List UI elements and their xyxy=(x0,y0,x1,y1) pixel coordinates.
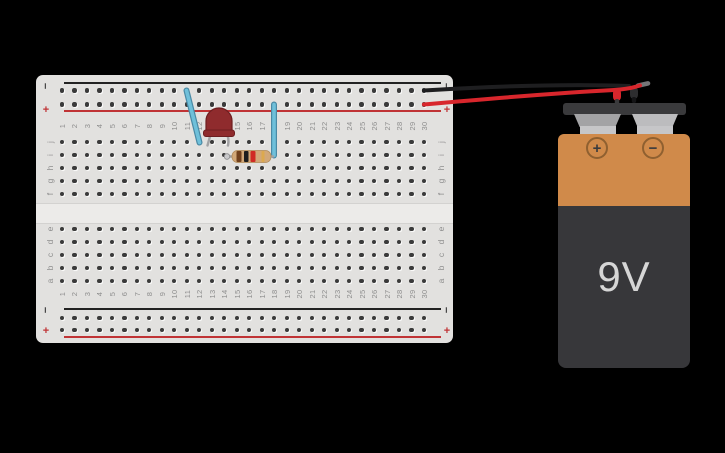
red-wire-clip-tip xyxy=(615,99,619,105)
black-wire-clip-tip xyxy=(632,97,636,103)
led-red[interactable] xyxy=(204,108,235,146)
resistor-band-4 xyxy=(262,151,265,162)
resistor-band-1 xyxy=(237,151,242,162)
resistor-band-2 xyxy=(244,151,249,162)
circuit-canvas: + − 9V 112233445566778899101011111212131… xyxy=(0,0,725,453)
wire-blue-negative[interactable] xyxy=(187,91,200,143)
resistor-lead-terminal[interactable] xyxy=(224,154,230,160)
wiring-layer xyxy=(0,0,725,453)
led-dome[interactable] xyxy=(206,108,232,132)
led-flange xyxy=(204,130,235,137)
resistor[interactable] xyxy=(224,151,273,163)
resistor-band-3 xyxy=(251,151,256,162)
